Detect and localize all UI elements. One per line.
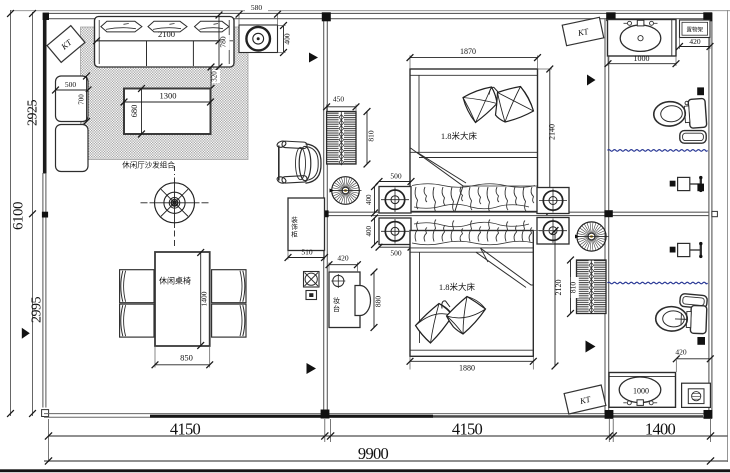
svg-text:320: 320 <box>211 71 219 82</box>
svg-text:500: 500 <box>390 249 402 258</box>
svg-text:2925: 2925 <box>26 100 41 127</box>
svg-text:810: 810 <box>569 282 578 294</box>
svg-text:休闲厅沙发组合: 休闲厅沙发组合 <box>122 160 175 170</box>
svg-text:700: 700 <box>78 94 86 105</box>
svg-text:4150: 4150 <box>452 420 483 439</box>
svg-text:780: 780 <box>219 36 228 48</box>
svg-text:880: 880 <box>374 296 383 308</box>
svg-text:1.8米大床: 1.8米大床 <box>439 282 476 292</box>
svg-text:休闲桌椅: 休闲桌椅 <box>159 276 191 286</box>
svg-text:9900: 9900 <box>358 444 389 463</box>
svg-text:1880: 1880 <box>459 364 475 373</box>
svg-text:400: 400 <box>283 33 292 45</box>
svg-text:400: 400 <box>365 226 373 237</box>
svg-text:2140: 2140 <box>548 124 557 140</box>
svg-text:420: 420 <box>675 348 687 357</box>
svg-text:1300: 1300 <box>160 91 177 101</box>
svg-text:420: 420 <box>337 254 349 263</box>
svg-text:装饰柜: 装饰柜 <box>291 215 298 238</box>
svg-text:1000: 1000 <box>633 387 649 396</box>
svg-text:1400: 1400 <box>200 291 209 306</box>
svg-text:6100: 6100 <box>11 202 27 230</box>
svg-text:1400: 1400 <box>645 420 676 439</box>
svg-text:1870: 1870 <box>460 47 476 56</box>
svg-text:4150: 4150 <box>170 420 201 439</box>
svg-text:2100: 2100 <box>158 29 175 39</box>
svg-text:450: 450 <box>333 95 345 104</box>
svg-text:580: 580 <box>251 3 263 12</box>
svg-text:2995: 2995 <box>30 297 45 324</box>
svg-text:500: 500 <box>65 80 77 89</box>
svg-text:1000: 1000 <box>634 54 650 63</box>
svg-text:850: 850 <box>180 353 193 363</box>
svg-text:400: 400 <box>365 194 373 205</box>
svg-text:680: 680 <box>129 105 139 118</box>
svg-text:500: 500 <box>390 172 402 181</box>
svg-text:置物架: 置物架 <box>687 26 704 34</box>
svg-text:1.8米大床: 1.8米大床 <box>441 131 478 141</box>
svg-text:420: 420 <box>689 37 701 46</box>
svg-text:510: 510 <box>301 248 313 257</box>
svg-text:810: 810 <box>367 130 376 142</box>
svg-text:妆台: 妆台 <box>333 296 340 313</box>
svg-text:2120: 2120 <box>554 280 563 296</box>
